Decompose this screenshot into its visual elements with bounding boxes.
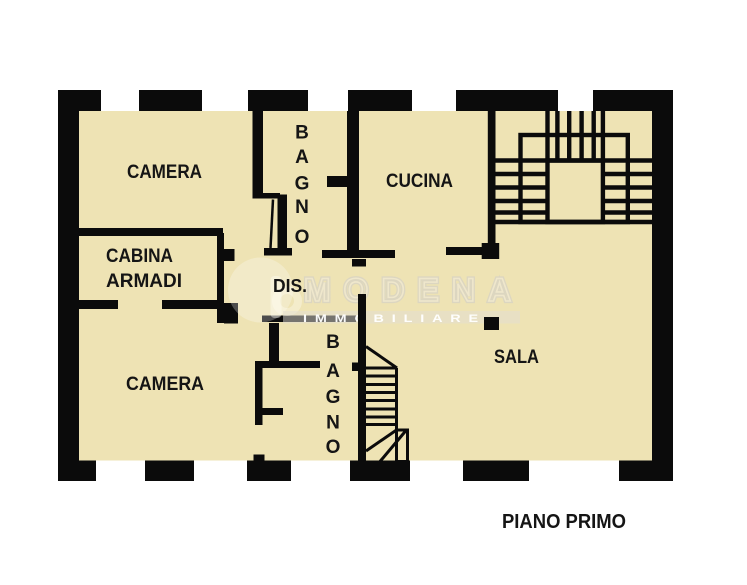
- svg-text:PIANO PRIMO: PIANO PRIMO: [502, 511, 626, 533]
- svg-text:CUCINA: CUCINA: [386, 171, 453, 192]
- svg-text:O: O: [326, 437, 341, 458]
- svg-text:MODENA: MODENA: [304, 272, 524, 308]
- svg-text:N: N: [326, 413, 340, 434]
- svg-text:O: O: [295, 227, 310, 248]
- svg-text:N: N: [295, 197, 309, 218]
- svg-text:B: B: [295, 123, 309, 144]
- svg-text:G: G: [326, 387, 341, 408]
- svg-text:CABINA: CABINA: [106, 246, 173, 267]
- svg-text:G: G: [295, 174, 310, 195]
- svg-text:IMMOBILIARE: IMMOBILIARE: [303, 313, 486, 325]
- svg-text:ARMADI: ARMADI: [106, 271, 182, 292]
- svg-text:A: A: [295, 147, 309, 168]
- svg-text:SALA: SALA: [494, 347, 539, 368]
- svg-text:CAMERA: CAMERA: [126, 374, 204, 395]
- svg-text:A: A: [326, 361, 340, 382]
- svg-text:CAMERA: CAMERA: [127, 162, 202, 183]
- svg-text:B: B: [326, 332, 340, 353]
- svg-text:DIS.: DIS.: [273, 275, 307, 296]
